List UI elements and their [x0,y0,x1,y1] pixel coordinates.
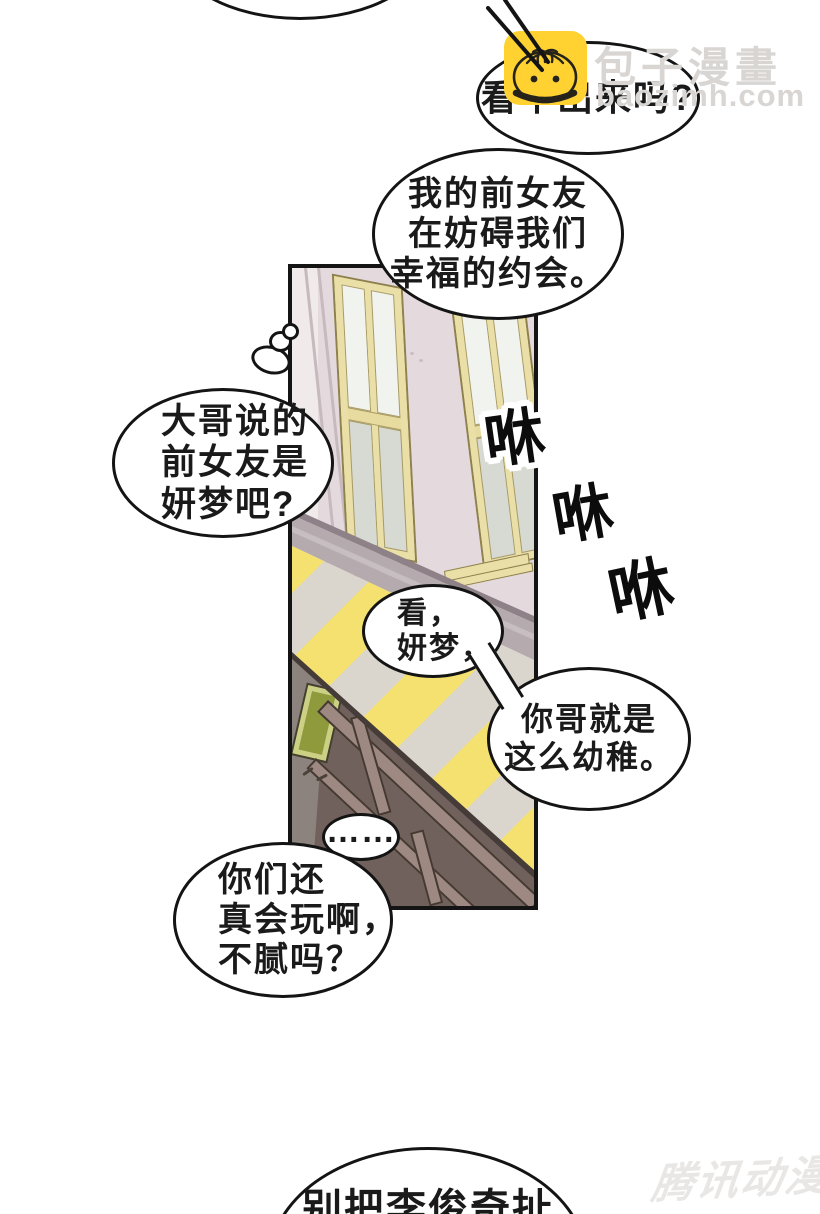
speech-bubble-cutoff-top [170,0,430,20]
sfx-whoosh: 咻 [545,461,619,557]
sfx-whoosh: 咻 [599,534,681,637]
bubble-text: 前女友是 [161,442,309,483]
bubble-text: 真会玩啊， [218,900,398,940]
bubble-text: 妍梦吧? [161,484,295,525]
bubble-text: 你们还 [218,860,326,900]
comic-page: 看不出来吗? 包子漫畫 baozimh.com 我的前女友 在妨碍我们 幸福的约… [0,0,820,1214]
wall-speck [410,352,414,355]
window-left [334,276,415,561]
sfx-whoosh: 咻 [478,386,550,481]
window-lower-sash [349,420,408,553]
bubble-text: 你哥就是 [521,701,657,739]
thought-bubble-3: 大哥说的 前女友是 妍梦吧? [112,388,334,538]
bubble-text: 看， [397,596,461,631]
thought-bump [282,323,299,340]
bubble-text: …… [326,811,396,851]
speech-bubble-7: 你们还 真会玩啊， 不腻吗？ [173,842,393,998]
speech-bubble-2: 我的前女友 在妨碍我们 幸福的约会。 [372,148,624,320]
bubble-text: 这么幼稚。 [504,739,674,777]
bubble-text: 在妨碍我们 [408,214,588,254]
wall-speck [419,359,423,362]
watermark-tencent: 腾讯动漫 [649,1141,820,1211]
bubble-text: 大哥说的 [161,401,309,442]
window-upper-sash [341,284,400,417]
bubble-text: 别把李俊奇扯 [302,1186,554,1214]
bubble-text: 我的前女友 [408,174,588,214]
bubble-text: 不腻吗？ [218,940,362,980]
speech-bubble-8-cutoff: 别把李俊奇扯 [268,1147,588,1214]
bubble-text: 幸福的约会。 [390,254,606,294]
watermark-domain: baozimh.com [596,78,805,114]
speech-tail-icon [480,0,570,80]
